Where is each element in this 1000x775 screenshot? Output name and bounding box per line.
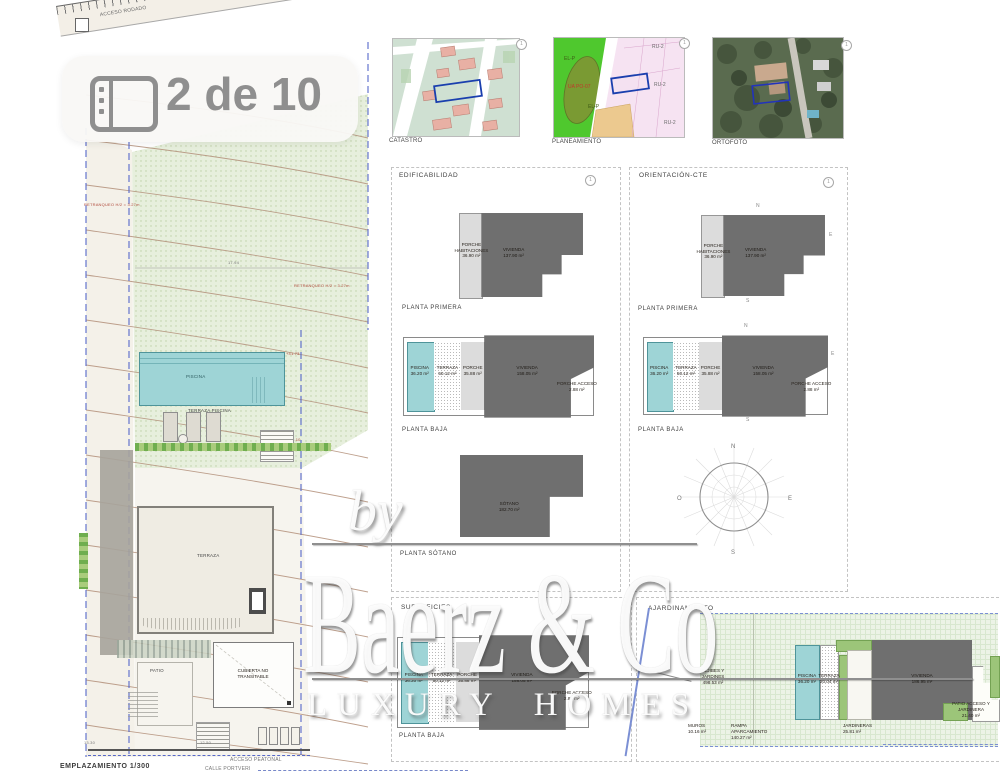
map-catastro-label: CATASTRO bbox=[389, 138, 422, 145]
rampa-label: RAMPA APARCAMIENTO140.27 m² bbox=[731, 723, 783, 741]
svg-text:RU-2: RU-2 bbox=[652, 44, 664, 50]
patio-label: PATIO bbox=[150, 668, 164, 673]
watermark-rule-bottom bbox=[312, 678, 973, 680]
building-shadow bbox=[100, 450, 133, 655]
map-ref-marker: 1 bbox=[516, 39, 527, 50]
svg-text:RU-2: RU-2 bbox=[654, 82, 666, 88]
terrace-label: TERRAZA50.12 m² bbox=[673, 365, 700, 377]
curved-stair-hatch bbox=[143, 618, 243, 630]
catastro-map-image bbox=[392, 38, 520, 137]
gallery-icon-dot bbox=[99, 98, 104, 103]
setback-label-right: RETRANQUEO H/2 = 3.27m bbox=[294, 284, 350, 289]
gallery-icon-dot bbox=[99, 109, 104, 114]
garden-bottom-dashes bbox=[883, 744, 998, 745]
south-boundary-dashed bbox=[88, 755, 310, 756]
svg-text:S: S bbox=[731, 550, 735, 556]
floorplan-baja-edificabilidad: PISCINA36.20 m² TERRAZA50.12 m² PORCHE35… bbox=[403, 337, 594, 416]
plan-sheet: ACCESO RODADO CALLE TORRENT RETRANQUEO H… bbox=[0, 0, 1000, 775]
panel-orientacion-title: ORIENTACIÓN-CTE bbox=[639, 173, 708, 180]
garden-path bbox=[847, 650, 872, 720]
level-pool: +41.73 bbox=[286, 352, 300, 357]
garden-patio-label: PATIO ACCESO Y JARDINERA21.40 m² bbox=[946, 701, 996, 719]
pool-label: PISCINA36.20 m² bbox=[407, 365, 433, 377]
svg-text:E: E bbox=[788, 496, 792, 502]
planta-baja-label: PLANTA BAJA bbox=[638, 427, 684, 433]
svg-text:EL-P: EL-P bbox=[564, 56, 576, 62]
orientation-letter-n: N bbox=[744, 324, 748, 329]
gallery-count-badge: 2 de 10 bbox=[62, 56, 358, 142]
gallery-count-label: 2 de 10 bbox=[166, 71, 322, 117]
svg-text:EL-P: EL-P bbox=[588, 104, 600, 110]
orientation-letter-n: N bbox=[756, 204, 760, 209]
orientation-letter-e: E bbox=[829, 233, 832, 238]
map-ortofoto-label: ORTOFOTO bbox=[712, 140, 747, 147]
pedestrian-access-label: ACCESO PEATONAL bbox=[230, 757, 282, 763]
pergola-column bbox=[291, 727, 300, 745]
dim-bottom-left: 13.30 bbox=[84, 741, 95, 746]
pool-label: PISCINA bbox=[186, 374, 205, 379]
map-planeamiento: RU-2 RU-2 RU-2 EL-P EL-P UA PO-07 PLANEA… bbox=[553, 37, 683, 136]
dim-bottom: 12.50 bbox=[200, 741, 211, 746]
pool-label: PISCINA36.20 m² bbox=[647, 365, 672, 377]
stair-core-inner bbox=[252, 592, 263, 610]
panel-edificabilidad-title: EDIFICABILIDAD bbox=[399, 173, 458, 180]
jardineras-label: JARDINERAS25.81 m² bbox=[843, 723, 875, 735]
garden-jardinera bbox=[990, 656, 1000, 698]
ortofoto-map-image bbox=[712, 37, 844, 139]
svg-text:O: O bbox=[677, 496, 682, 502]
terrace-label: TERRAZA50.12 m² bbox=[434, 365, 462, 377]
porch-label: PORCHEHABITACIONES36.90 m² bbox=[699, 243, 729, 261]
map-catastro: CATASTRO bbox=[392, 38, 518, 135]
porch-label: PORCHEHABITACIONES36.90 m² bbox=[457, 242, 487, 260]
watermark-by: by bbox=[348, 477, 403, 544]
dwelling-label: VIVIENDA137.90 m² bbox=[733, 247, 778, 259]
svg-text:RU-2: RU-2 bbox=[664, 120, 676, 126]
patio-steps bbox=[128, 692, 158, 718]
pool-lane-lines bbox=[140, 358, 284, 364]
south-boundary-line bbox=[88, 749, 310, 751]
manhole-square bbox=[75, 18, 89, 32]
planta-baja-label: PLANTA BAJA bbox=[399, 733, 445, 739]
pool-steps bbox=[252, 377, 268, 403]
basement-area bbox=[460, 455, 583, 537]
orientation-letter-s: S bbox=[746, 418, 749, 423]
pergola-column bbox=[269, 727, 278, 745]
hedge-row bbox=[135, 443, 331, 451]
dwelling-label: VIVIENDA158.05 m² bbox=[736, 365, 792, 377]
porch-label: PORCHE35.88 m² bbox=[699, 365, 721, 377]
sun-lounger bbox=[206, 412, 221, 442]
siteplan-title: EMPLAZAMIENTO 1/300 bbox=[60, 763, 150, 771]
map-ref-marker: 1 bbox=[841, 40, 852, 51]
dwelling-label: VIVIENDA137.90 m² bbox=[491, 247, 536, 259]
street-bottom-label: CALLE PORTVERI bbox=[205, 766, 251, 772]
gallery-icon-divider bbox=[109, 81, 113, 127]
planeamiento-map-image: RU-2 RU-2 RU-2 EL-P EL-P UA PO-07 bbox=[553, 37, 685, 138]
gallery-icon-dot bbox=[99, 87, 104, 92]
pergola-hatch bbox=[117, 640, 211, 658]
floorplan-primera-orientacion: PORCHEHABITACIONES36.90 m² VIVIENDA137.9… bbox=[701, 215, 825, 296]
compass-rose-icon: N S E O bbox=[676, 438, 796, 556]
stair-core bbox=[249, 588, 266, 614]
road-name-label: CALLE TORRENT bbox=[224, 0, 268, 1]
planta-primera-label: PLANTA PRIMERA bbox=[638, 306, 698, 312]
planta-primera-label: PLANTA PRIMERA bbox=[402, 305, 462, 311]
floorplan-primera-edificabilidad: PORCHEHABITACIONES36.90 m² VIVIENDA137.9… bbox=[459, 213, 583, 297]
bottom-stairs bbox=[196, 722, 230, 750]
hedge-column bbox=[79, 533, 88, 589]
orientation-letter-e: E bbox=[831, 352, 834, 357]
pergola-column bbox=[258, 727, 267, 745]
roof-label: CUBIERTA NOTRANSITABLE bbox=[228, 668, 278, 680]
svg-text:UA PO-07: UA PO-07 bbox=[568, 84, 591, 90]
map-planeamiento-label: PLANEAMIENTO bbox=[552, 139, 601, 146]
building-footprint bbox=[137, 506, 274, 634]
corner-marker bbox=[287, 701, 291, 705]
pergola-column bbox=[280, 727, 289, 745]
panel-ref-marker: 1 bbox=[823, 177, 834, 188]
orientation-letter-s: S bbox=[746, 299, 749, 304]
muros-label: MUROS10.16 m² bbox=[688, 723, 714, 735]
floorplan-baja-orientacion: PISCINA36.20 m² TERRAZA50.12 m² PORCHE35… bbox=[643, 337, 828, 415]
sun-lounger bbox=[163, 412, 178, 442]
entry-porch-label: PORCHE ACCESO2.88 m² bbox=[556, 381, 598, 393]
planta-baja-label: PLANTA BAJA bbox=[402, 427, 448, 433]
sun-lounger bbox=[186, 412, 201, 442]
floorplan-sotano-edificabilidad: SÓTANO182.70 m² bbox=[460, 455, 583, 537]
watermark-brand: Baerz & Co bbox=[303, 552, 719, 697]
porch-label: PORCHE35.88 m² bbox=[461, 365, 484, 377]
entry-porch-label: PORCHE ACCESO2.88 m² bbox=[791, 381, 832, 393]
dwelling-label: VIVIENDA158.05 m² bbox=[499, 365, 556, 377]
dim-top-label: 17.94 bbox=[228, 261, 239, 266]
setback-label-left: RETRANQUEO H/2 = 3.27m bbox=[84, 203, 140, 208]
map-ortofoto: ORTOFOTO bbox=[712, 37, 842, 137]
map-ref-marker: 1 bbox=[679, 38, 690, 49]
basement-label: SÓTANO182.70 m² bbox=[487, 501, 531, 513]
panel-ref-marker: 1 bbox=[585, 175, 596, 186]
terrace-label: TERRAZA bbox=[197, 553, 219, 558]
siteplan-pool bbox=[139, 352, 285, 406]
svg-text:N: N bbox=[731, 444, 735, 450]
street-bottom-dashes bbox=[258, 770, 468, 771]
gallery-icon bbox=[90, 76, 158, 132]
watermark-tagline: LUXURY HOMES bbox=[307, 687, 699, 724]
